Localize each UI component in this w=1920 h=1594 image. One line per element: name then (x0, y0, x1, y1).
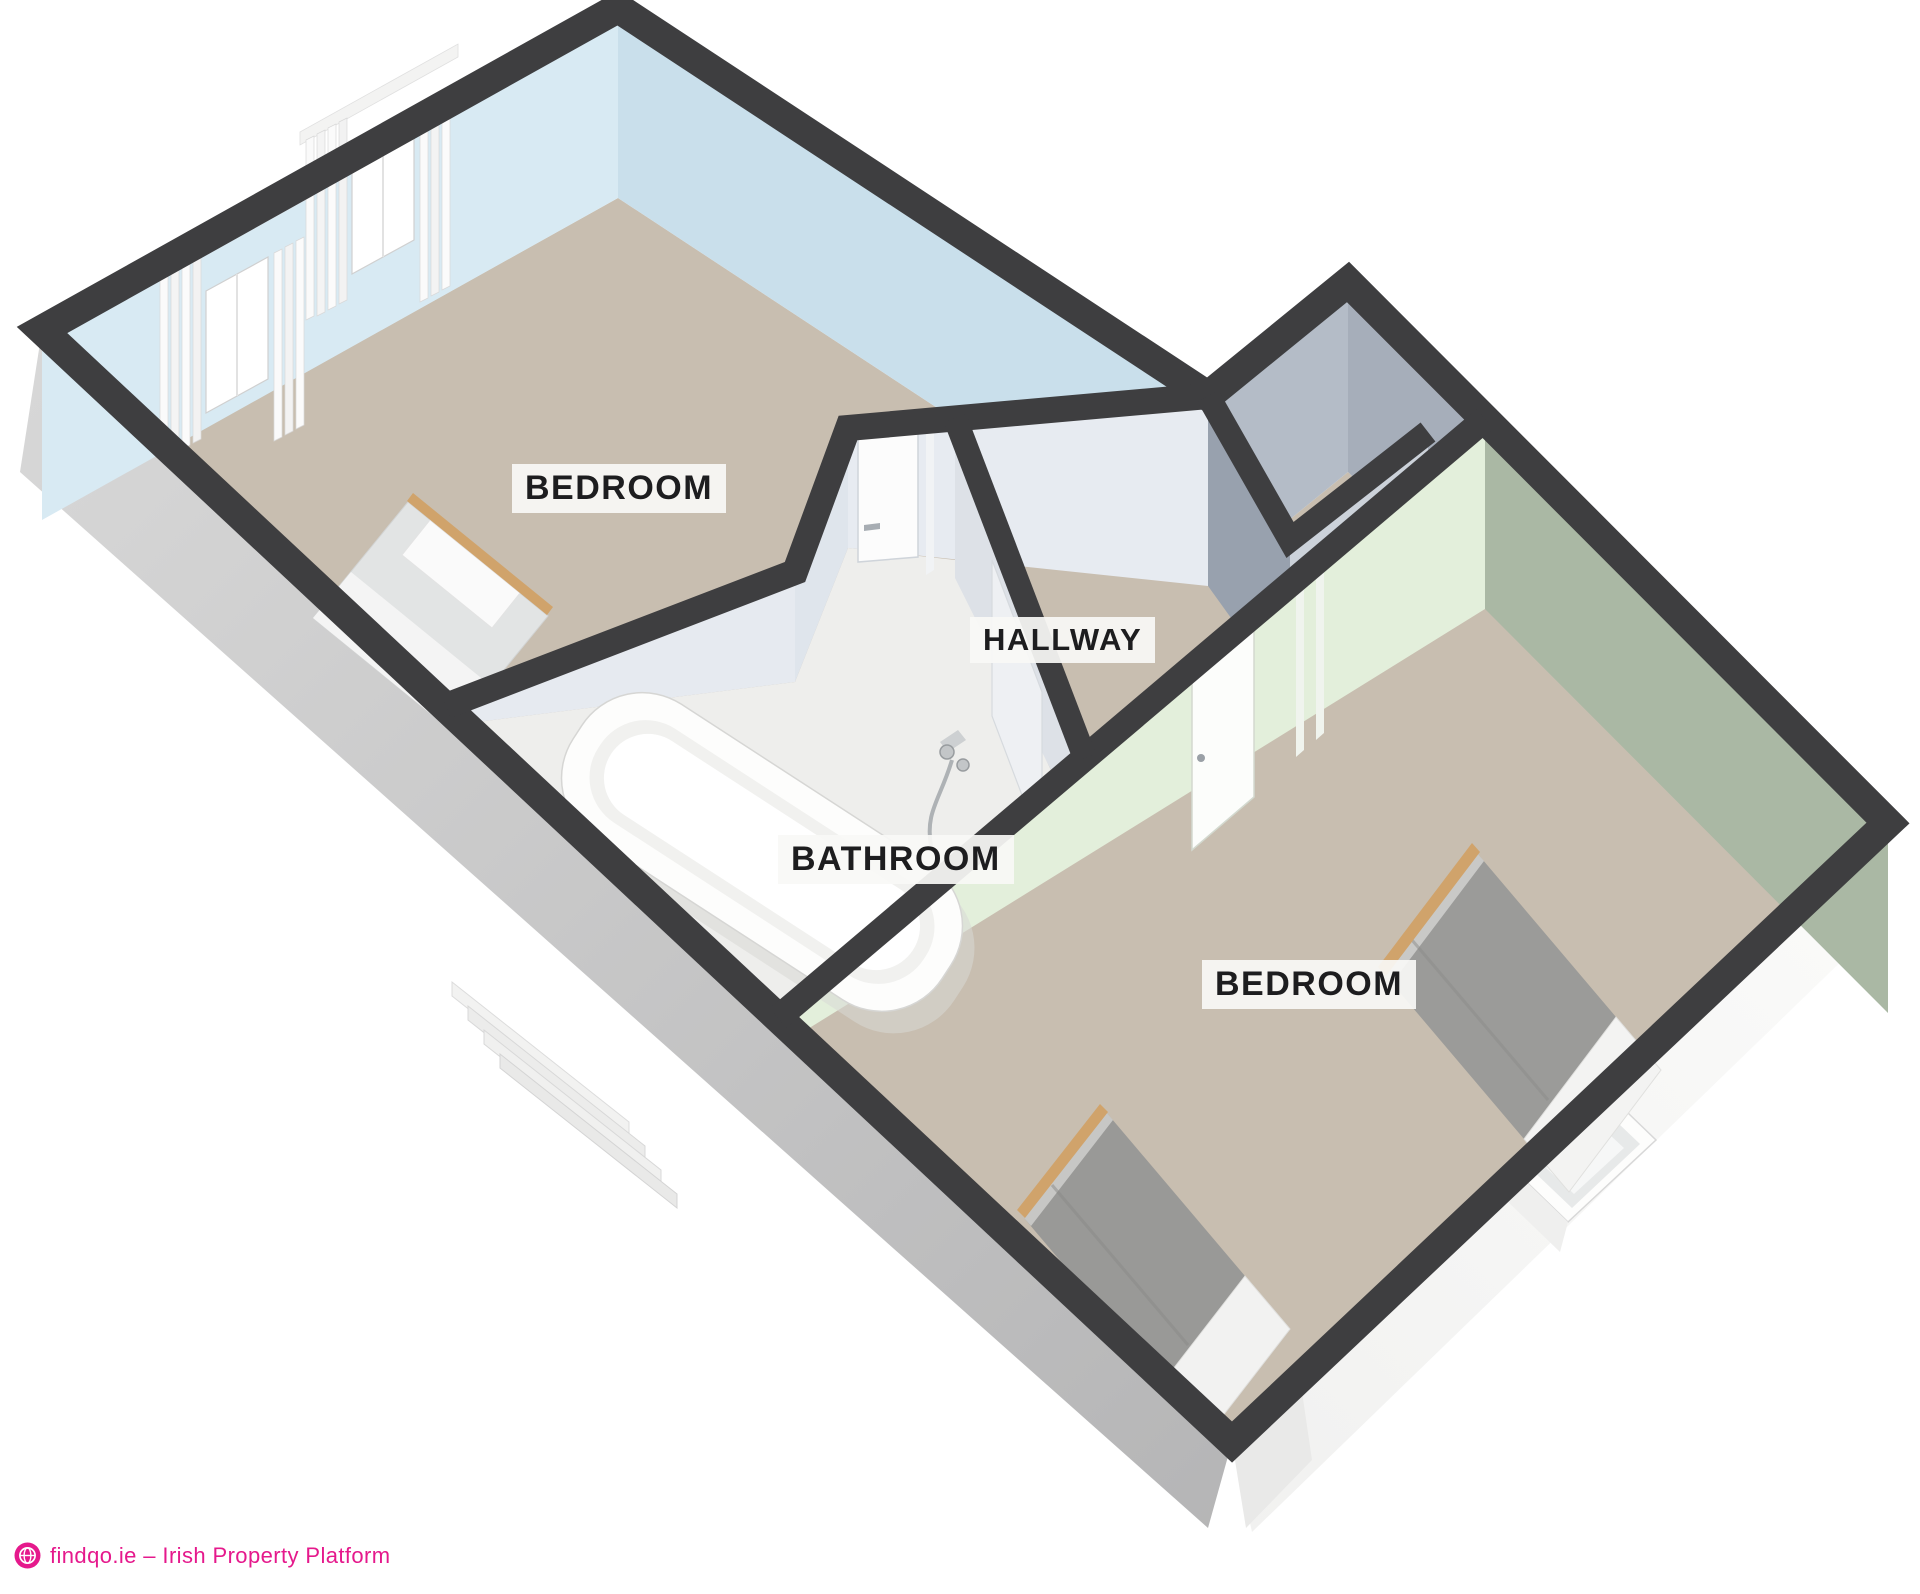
floor-plan-3d-render (0, 0, 1920, 1594)
door-handle (1197, 754, 1205, 762)
room-label-hallway: HALLWAY (970, 617, 1155, 663)
floor-plan-canvas: BEDROOM HALLWAY BATHROOM BEDROOM findqo.… (0, 0, 1920, 1594)
globe-icon (14, 1542, 41, 1569)
room-label-bathroom: BATHROOM (778, 835, 1014, 884)
branding-text: findqo.ie – Irish Property Platform (50, 1543, 390, 1569)
branding-watermark: findqo.ie – Irish Property Platform (14, 1542, 390, 1569)
room-label-bedroom-2: BEDROOM (1202, 960, 1416, 1009)
room-label-bedroom-1: BEDROOM (512, 464, 726, 513)
